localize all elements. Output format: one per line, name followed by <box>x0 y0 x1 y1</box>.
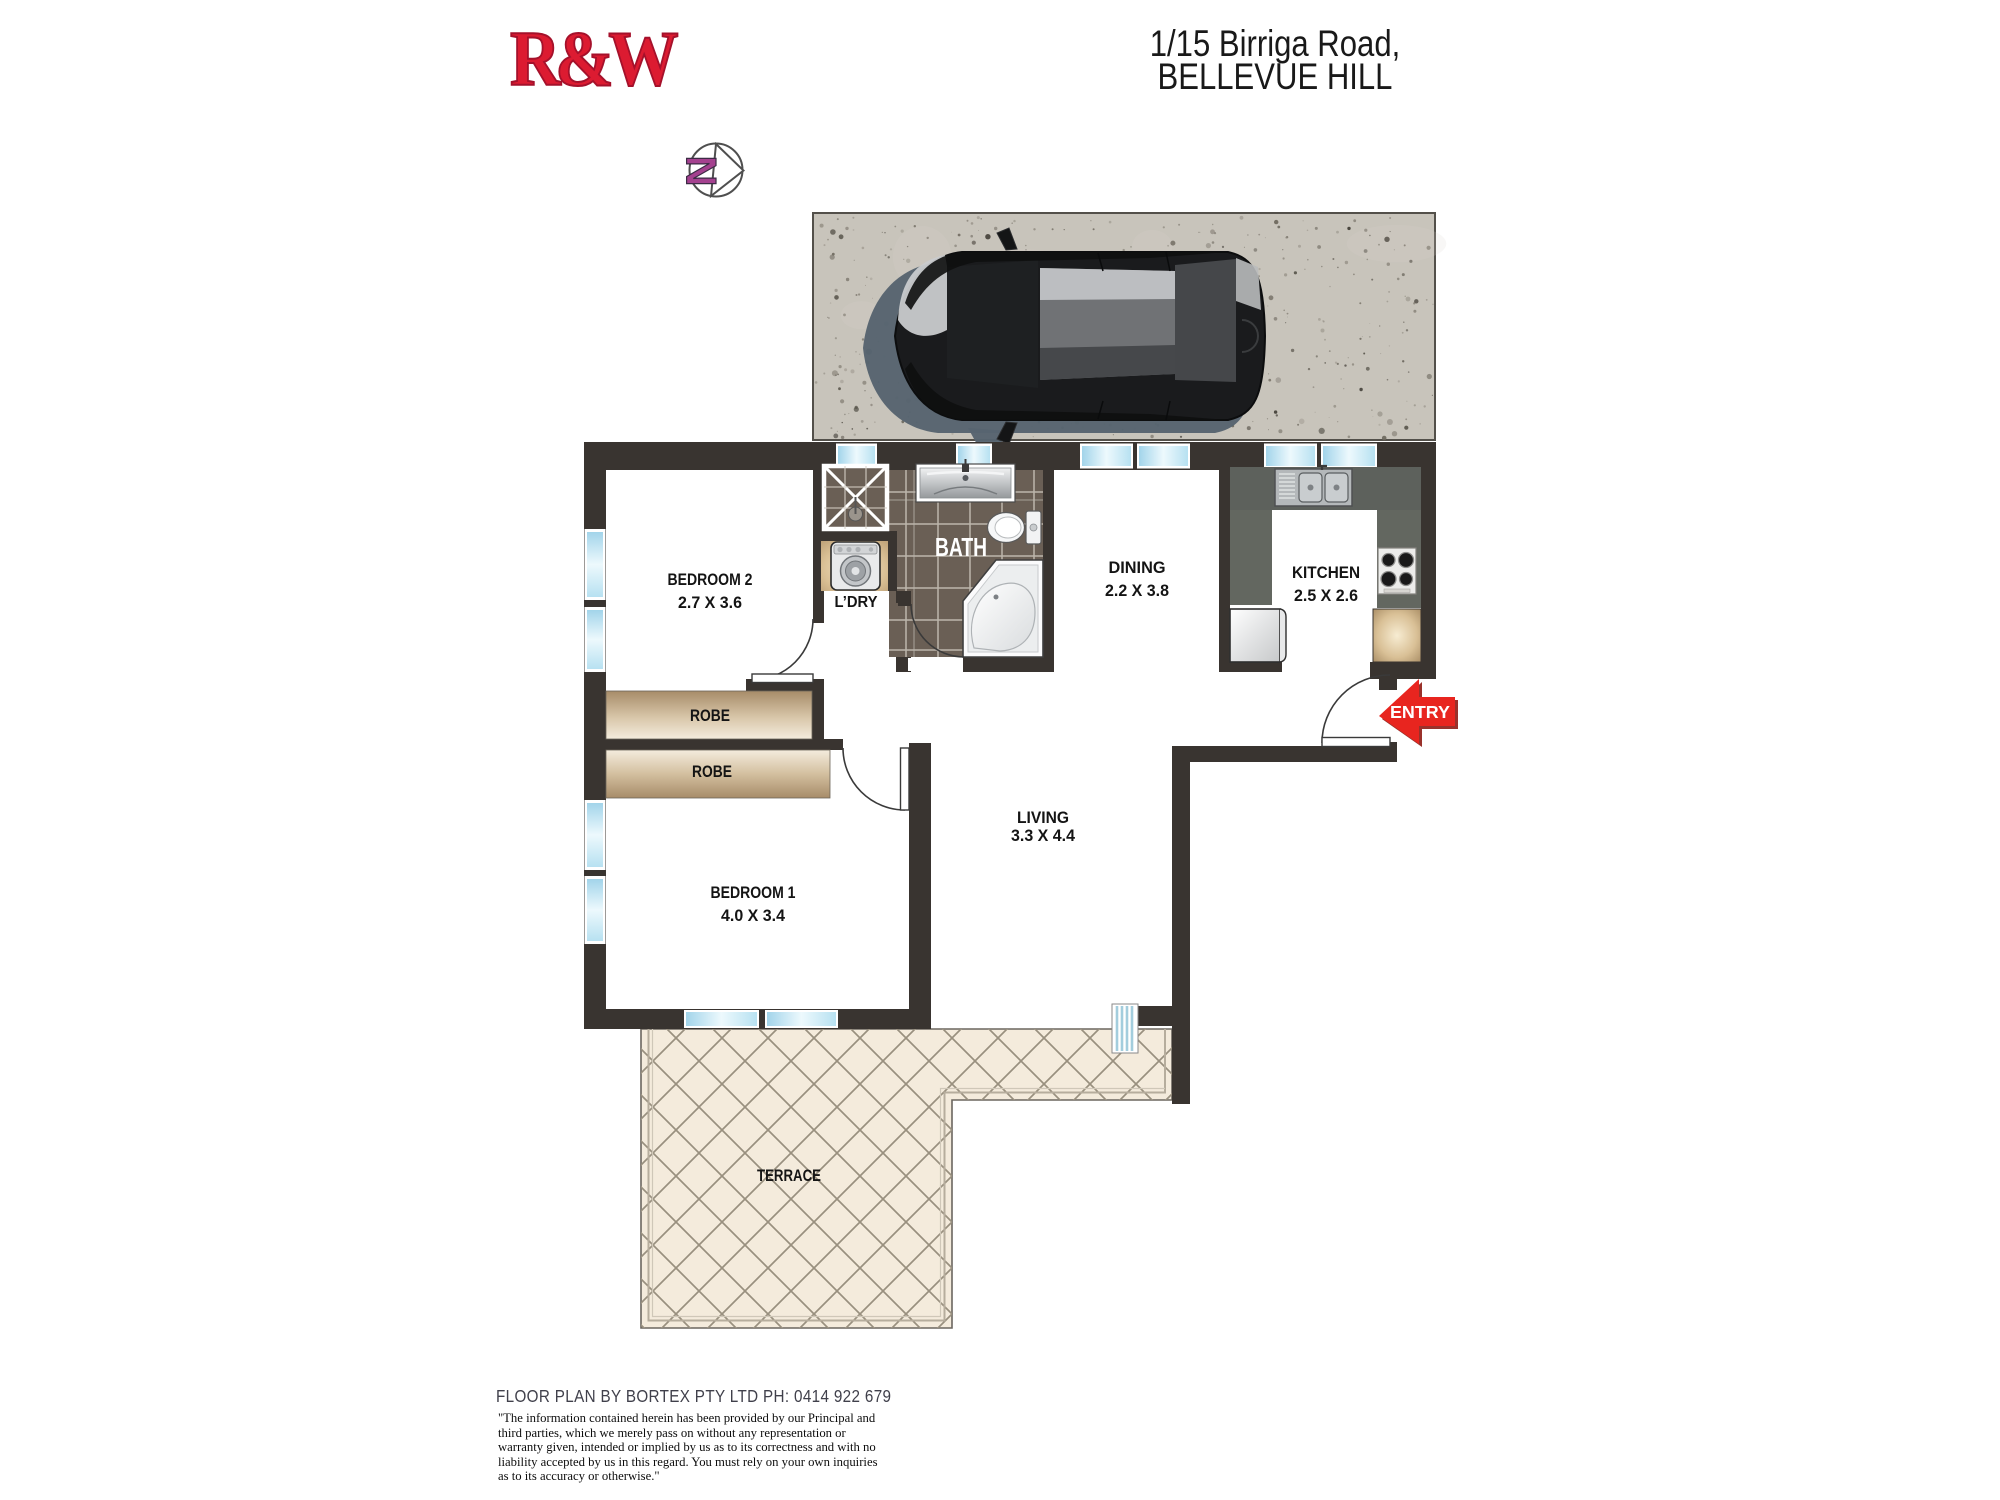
svg-text:DINING: DINING <box>1109 558 1166 577</box>
svg-text:3.3 X 4.4: 3.3 X 4.4 <box>1011 827 1076 845</box>
svg-text:L’DRY: L’DRY <box>835 594 878 611</box>
svg-text:4.0 X 3.4: 4.0 X 3.4 <box>721 907 786 925</box>
svg-text:2.5 X 2.6: 2.5 X 2.6 <box>1294 587 1358 605</box>
svg-text:LIVING: LIVING <box>1017 808 1069 827</box>
svg-text:ENTRY: ENTRY <box>1390 702 1450 722</box>
svg-text:ROBE: ROBE <box>690 707 730 725</box>
svg-text:TERRACE: TERRACE <box>757 1166 821 1185</box>
svg-text:ROBE: ROBE <box>692 763 732 781</box>
svg-text:N: N <box>678 155 726 186</box>
svg-text:BATH: BATH <box>935 532 987 562</box>
svg-text:2.2 X 3.8: 2.2 X 3.8 <box>1105 582 1169 600</box>
svg-text:2.7 X 3.6: 2.7 X 3.6 <box>678 594 742 612</box>
svg-text:KITCHEN: KITCHEN <box>1292 563 1360 582</box>
svg-text:BEDROOM 2: BEDROOM 2 <box>668 570 753 589</box>
svg-text:BEDROOM 1: BEDROOM 1 <box>711 883 796 902</box>
